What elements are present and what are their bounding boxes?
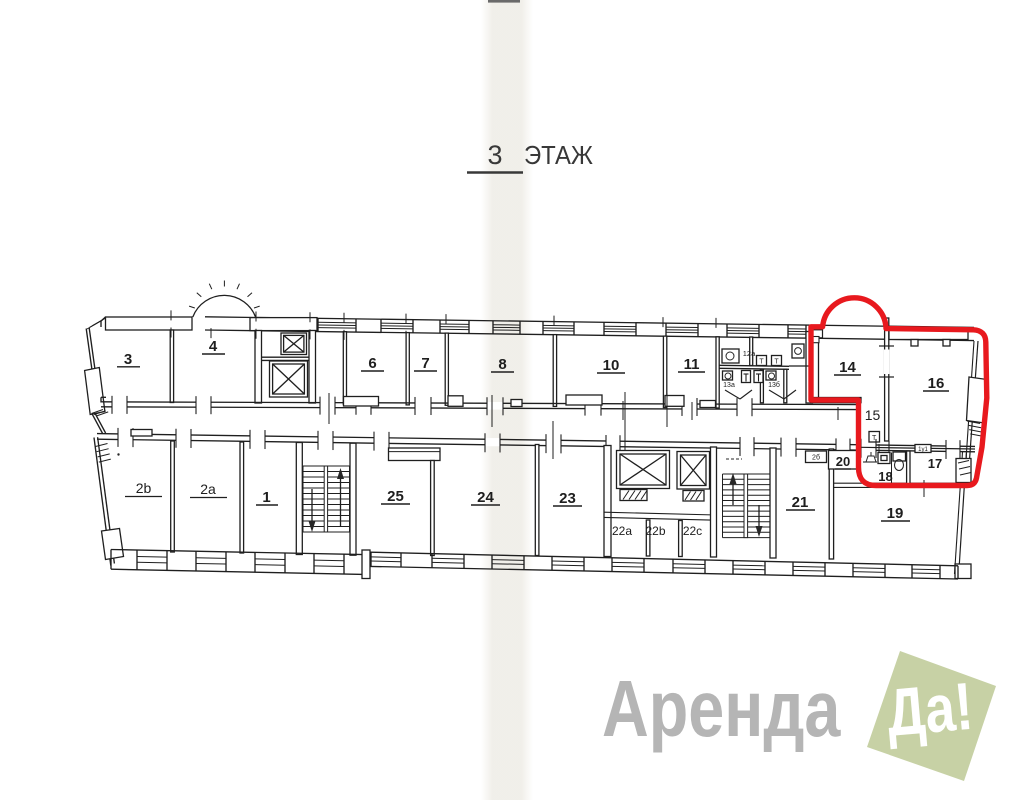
svg-text:7: 7 xyxy=(421,355,429,372)
svg-text:20: 20 xyxy=(836,454,850,469)
svg-text:10: 10 xyxy=(603,357,620,374)
svg-text:3: 3 xyxy=(124,351,132,368)
svg-text:24: 24 xyxy=(477,489,494,506)
svg-text:2b: 2b xyxy=(136,480,152,496)
svg-text:11: 11 xyxy=(684,356,700,373)
svg-text:22b: 22b xyxy=(645,524,665,538)
svg-text:4: 4 xyxy=(209,338,218,355)
svg-text:18: 18 xyxy=(878,469,892,484)
svg-text:12a: 12a xyxy=(743,349,756,358)
svg-text:21: 21 xyxy=(792,494,809,511)
svg-text:2б: 2б xyxy=(812,454,820,462)
svg-text:3: 3 xyxy=(487,140,502,170)
svg-text:17: 17 xyxy=(928,456,942,471)
svg-text:23: 23 xyxy=(559,490,576,507)
svg-text:Аренда: Аренда xyxy=(602,665,841,754)
svg-text:Да!: Да! xyxy=(884,668,976,750)
svg-text:13б: 13б xyxy=(768,381,780,389)
svg-text:1у1: 1у1 xyxy=(918,447,928,453)
svg-text:6: 6 xyxy=(368,355,376,372)
svg-text:16: 16 xyxy=(928,375,945,392)
svg-text:25: 25 xyxy=(387,488,404,505)
svg-text:15: 15 xyxy=(865,407,881,423)
svg-text:T: T xyxy=(759,359,764,366)
svg-text:22a: 22a xyxy=(612,524,632,538)
svg-text:2a: 2a xyxy=(200,481,216,497)
svg-text:T: T xyxy=(774,359,779,366)
svg-text:1: 1 xyxy=(262,489,270,506)
svg-text:14: 14 xyxy=(839,359,856,376)
svg-text:13a: 13a xyxy=(723,382,735,389)
svg-text:ЭТАЖ: ЭТАЖ xyxy=(524,140,593,170)
svg-text:19: 19 xyxy=(887,505,904,522)
svg-text:22c: 22c xyxy=(683,524,702,538)
svg-text:8: 8 xyxy=(498,356,506,373)
